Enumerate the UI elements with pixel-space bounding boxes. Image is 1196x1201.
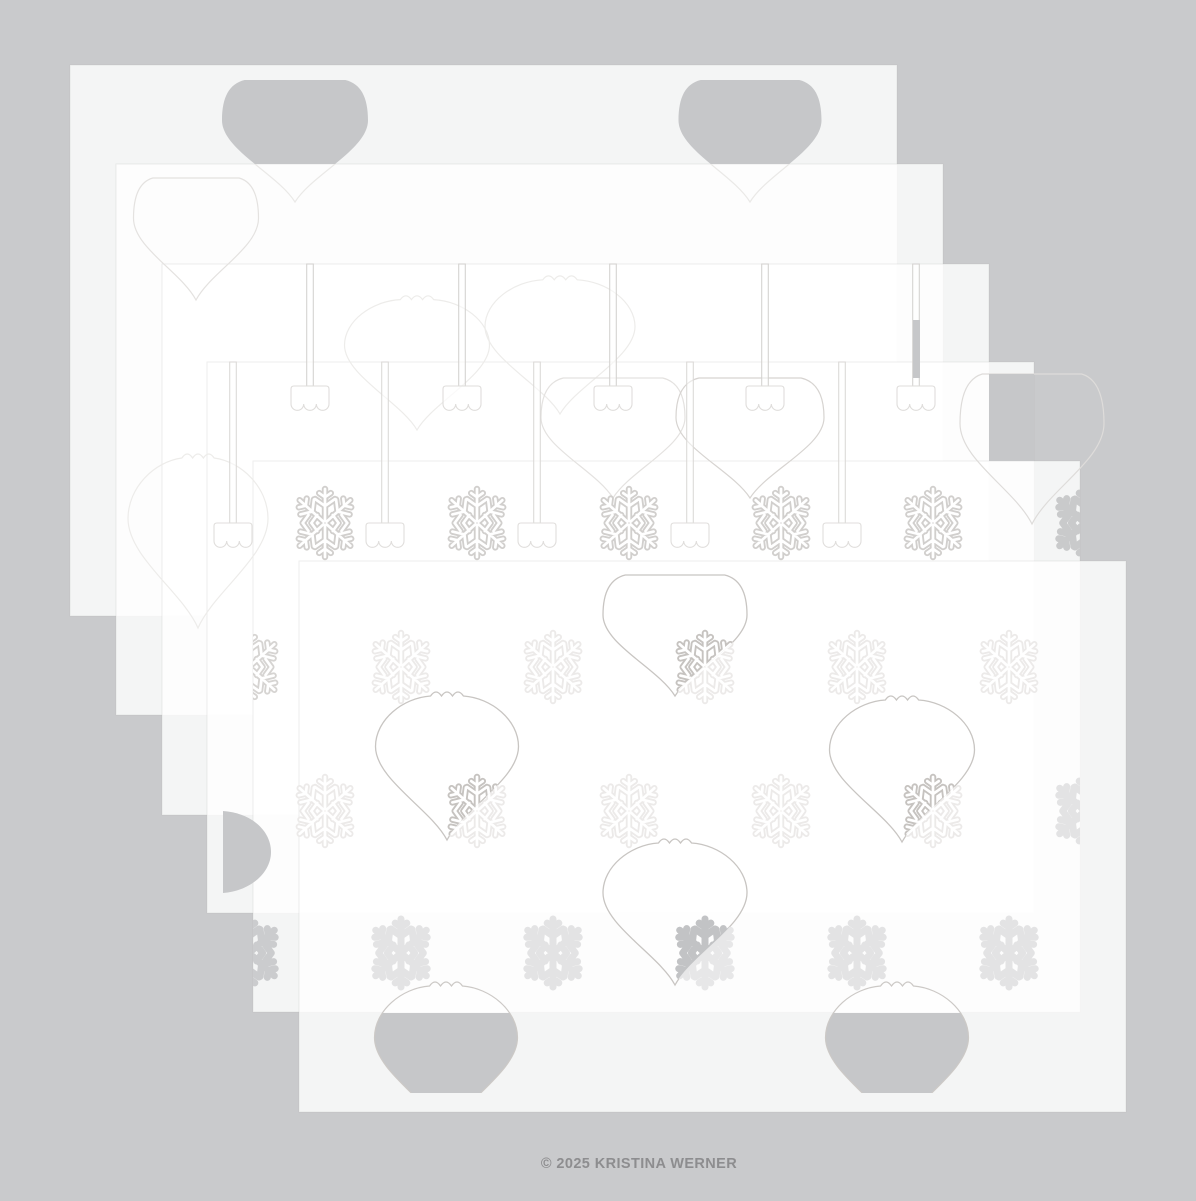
copyright-text: © 2025 KRISTINA WERNER (541, 1156, 737, 1172)
ornament-cap (897, 386, 935, 410)
ornament-cap (671, 523, 709, 547)
ornament-cap (746, 386, 784, 410)
ornament-cap (366, 523, 404, 547)
stencil-stack-artwork (0, 0, 1196, 1196)
s2-gray-slot (913, 320, 920, 378)
snowflake-icon (983, 919, 1035, 987)
ornament-cap (291, 386, 329, 410)
hanger-slot (459, 264, 466, 386)
hanger-slot (687, 362, 694, 523)
hanger-slot (230, 362, 237, 523)
hanger-slot (534, 362, 541, 523)
snowflake-icon (375, 919, 427, 987)
page: { "canvas": { "width": 1196, "height": 1… (0, 0, 1196, 1196)
hanger-slot (839, 362, 846, 523)
hanger-slot (762, 264, 769, 386)
snowflake-icon (527, 919, 579, 987)
hanger-slot (382, 362, 389, 523)
mockup-canvas (0, 0, 1196, 1196)
ornament-cap (518, 523, 556, 547)
hanger-slot (307, 264, 314, 386)
ornament-cap (443, 386, 481, 410)
ornament-cap (594, 386, 632, 410)
hanger-slot (610, 264, 617, 386)
snowflake-icon (831, 919, 883, 987)
ornament-cap (823, 523, 861, 547)
ornament-cap (214, 523, 252, 547)
